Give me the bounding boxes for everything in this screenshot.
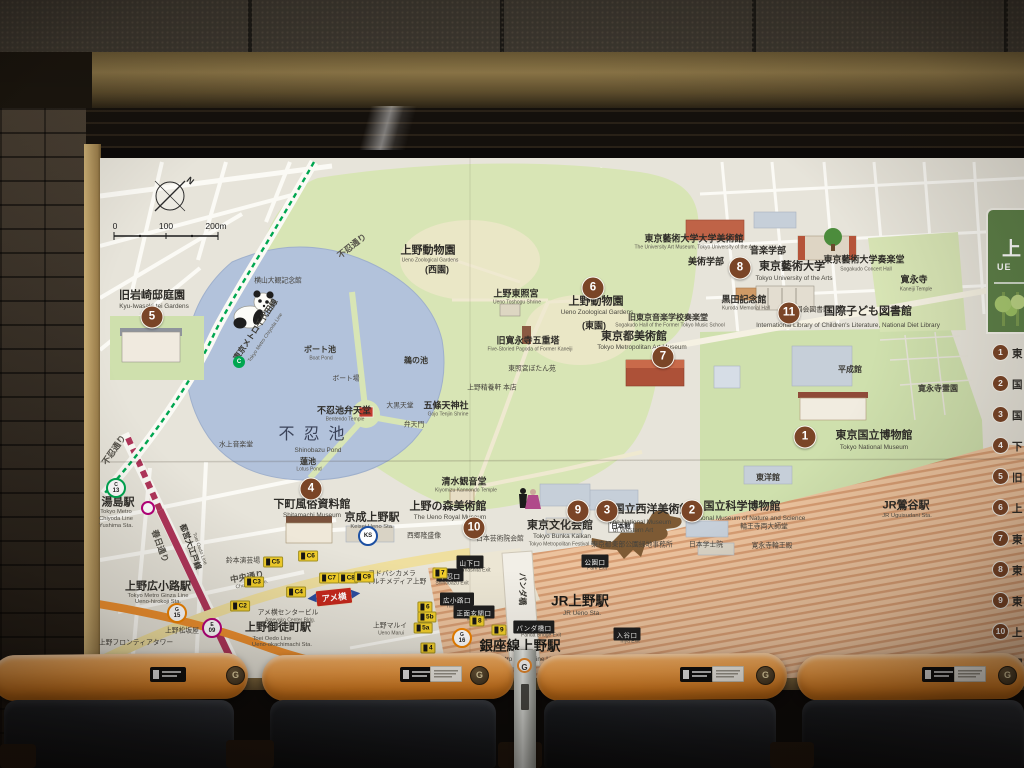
ginza-line-roundel: G [226, 666, 245, 685]
station-map-photo: 上野動物園Ueno Zoological Gardens(西園)上野東照宮Uen… [0, 0, 1024, 768]
bench-back [544, 700, 776, 768]
notice-sticker [430, 666, 462, 682]
ginza-line-roundel: G [756, 666, 775, 685]
security-sticker [150, 667, 186, 682]
seat-gap-shadow [770, 742, 814, 768]
security-sticker [680, 667, 716, 682]
seat-gap-shadow [226, 740, 274, 768]
ginza-line-roundel: G [470, 666, 489, 685]
seat-gap-shadow [0, 744, 36, 768]
pole-sign [521, 684, 529, 710]
security-sticker [922, 667, 958, 682]
handrail-pole: G [514, 650, 536, 768]
bench-seats: GGGG [0, 0, 1024, 768]
ginza-line-roundel: G [517, 658, 532, 673]
notice-sticker [712, 666, 744, 682]
notice-sticker [954, 666, 986, 682]
ginza-line-roundel: G [998, 666, 1017, 685]
bench-rail [797, 653, 1024, 701]
bench-rail [537, 653, 787, 702]
bench-rail [0, 653, 248, 702]
bench-back [4, 700, 234, 768]
bench-back [270, 700, 496, 768]
bench-back [802, 700, 1024, 768]
